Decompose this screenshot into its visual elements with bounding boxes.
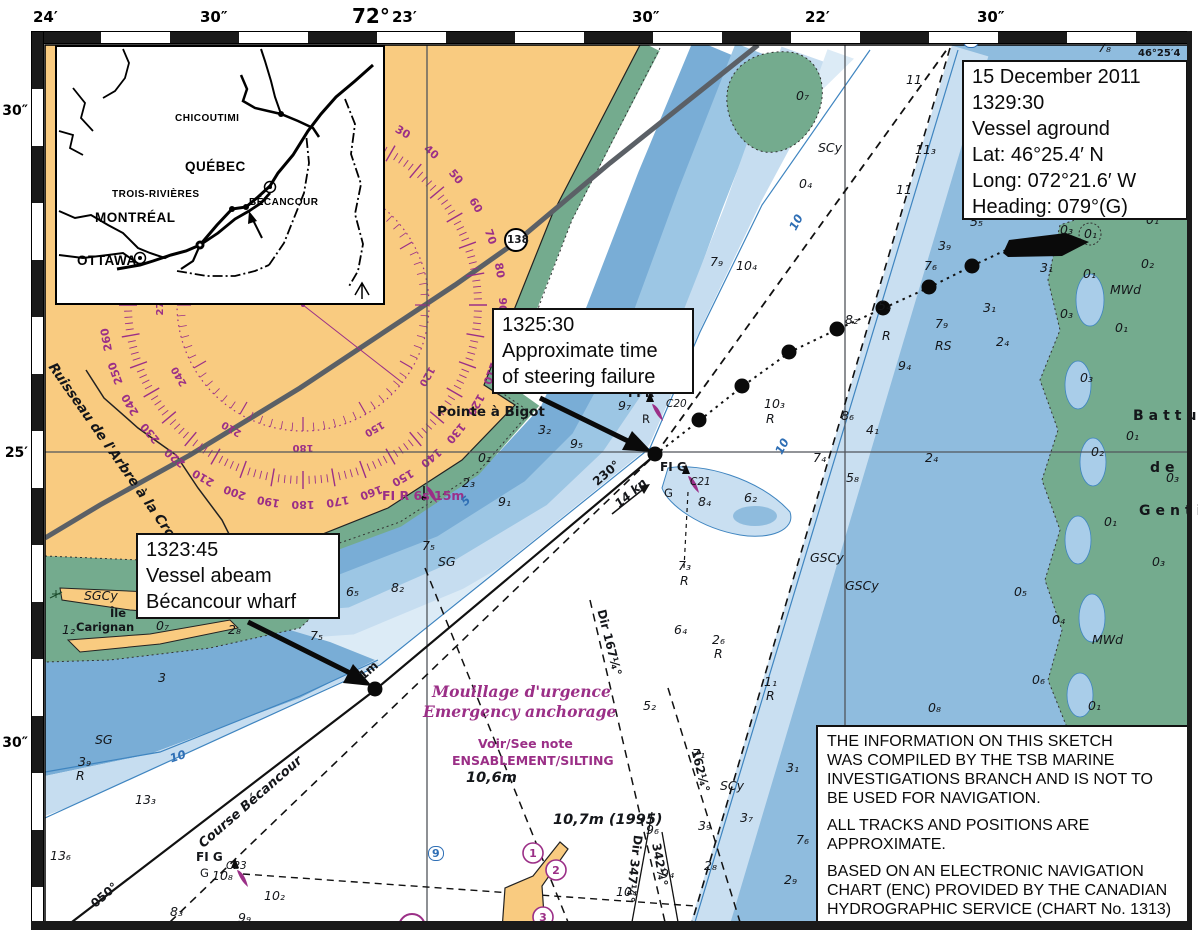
- depth-label: 2₄: [996, 334, 1009, 349]
- shoal-pocket-deep: [733, 506, 777, 526]
- note-line: Approximate time: [502, 338, 684, 364]
- depth-label: 3₉: [78, 754, 91, 769]
- depth-label: 6₄: [674, 622, 687, 637]
- depth-label: 0₂: [1091, 444, 1104, 459]
- saguenay-river: [241, 75, 319, 137]
- depth-label: 7₆: [924, 258, 937, 273]
- depth-label: 8₄: [698, 494, 711, 509]
- note-line: Vessel aground: [972, 116, 1178, 142]
- disclaimer-note: THE INFORMATION ON THIS SKETCHWAS COMPIL…: [816, 725, 1192, 924]
- depth-label: 10₈: [212, 868, 233, 883]
- depth-label: 6₅: [346, 584, 359, 599]
- depth-label: R: [766, 411, 775, 426]
- depth-label: 11: [896, 182, 912, 197]
- becancour-pointer-head: [248, 211, 257, 224]
- note-line: 1325:30: [502, 312, 684, 338]
- axis-tick-label: 30″: [0, 103, 28, 119]
- depth-label: 10₃: [764, 396, 785, 411]
- note-line: Long: 072°21.6′ W: [972, 168, 1178, 194]
- disclaimer-paragraph: THE INFORMATION ON THIS SKETCHWAS COMPIL…: [827, 732, 1181, 808]
- depth-label: 9₄: [661, 866, 674, 881]
- depth-label: 2₃: [462, 475, 475, 490]
- depth-label: 7₉: [935, 316, 948, 331]
- depth-label: 3₁: [1040, 260, 1053, 275]
- place-label: Carignan: [76, 620, 134, 634]
- depth-label: 9₄: [898, 358, 911, 373]
- depth-label: 11₃: [915, 142, 936, 157]
- depth-label: 10,6m: [466, 770, 517, 786]
- seabed-label: MWd: [1110, 282, 1141, 297]
- depth-label: 3₉: [938, 238, 951, 253]
- place-label: Île: [110, 606, 126, 620]
- depth-label: 10₄: [616, 884, 637, 899]
- note-line: Vessel abeam: [146, 563, 330, 589]
- depth-label: R: [714, 646, 723, 661]
- boundary: [177, 265, 269, 276]
- tidal-pool: [1065, 516, 1091, 564]
- notice-label: Mouillage d'urgence: [432, 682, 611, 701]
- depth-label: 0₃: [1166, 470, 1179, 485]
- note-line: 1329:30: [972, 90, 1178, 116]
- navaid-label: FI G: [660, 460, 687, 474]
- depth-label: 0₁: [1126, 428, 1139, 443]
- inset-city-label: BÉCANCOUR: [249, 197, 319, 208]
- depth-label: 10₄: [736, 258, 757, 273]
- tidal-pool: [1065, 361, 1091, 409]
- navaid-label: FI G: [196, 850, 223, 864]
- depth-label: 13₃: [135, 792, 156, 807]
- seabed-label: SG: [95, 732, 113, 747]
- navaid-label: R: [642, 412, 650, 426]
- navaid-label: C21: [690, 476, 711, 488]
- tidal-pool: [1076, 274, 1104, 326]
- axis-tick-label: 30″: [632, 8, 660, 26]
- inset-city-label: CHICOUTIMI: [175, 113, 239, 124]
- depth-label: 7₆: [796, 832, 809, 847]
- depth-label: 0₁: [478, 450, 491, 465]
- axis-tick-label: 24′: [33, 8, 58, 26]
- depth-label: 0₂: [1141, 256, 1154, 271]
- depth-label: 1₁: [764, 674, 777, 689]
- svg-text:1: 1: [529, 847, 537, 860]
- depth-label: 0₇: [156, 618, 169, 633]
- depth-label: 7₅: [422, 538, 435, 553]
- depth-label: 0₃: [1060, 306, 1073, 321]
- axis-tick-label: 22′: [805, 8, 830, 26]
- axis-tick-label: 25′: [0, 445, 28, 461]
- disclaimer-paragraph: BASED ON AN ELECTRONIC NAVIGATIONCHART (…: [827, 862, 1181, 919]
- compass-bearing-label: 180: [291, 498, 314, 511]
- depth-label: R: [76, 768, 85, 783]
- notice-label: Voir/See note: [478, 736, 573, 751]
- river: [261, 49, 281, 114]
- seabed-label: SGCy: [84, 588, 118, 603]
- note-line: Heading: 079°(G): [972, 194, 1178, 220]
- note-line: Lat: 46°25.4′ N: [972, 142, 1178, 168]
- depth-label: 2₆: [712, 632, 725, 647]
- river: [103, 49, 129, 98]
- note-line: Bécancour wharf: [146, 589, 330, 615]
- depth-label: 0₃: [1152, 554, 1165, 569]
- annotation-steering-failure: 1325:30Approximate timeof steering failu…: [492, 308, 694, 394]
- depth-label: 8₆: [841, 408, 854, 423]
- inset-overview-map: CHICOUTIMIQUÉBECTROIS-RIVIÈRESBÉCANCOURM…: [55, 45, 385, 305]
- border-scale-right: [1187, 31, 1192, 926]
- depth-label: R: [766, 688, 775, 703]
- svg-text:2: 2: [552, 864, 560, 877]
- seabed-label: SCy: [720, 778, 744, 793]
- depth-label: 8₂: [391, 580, 404, 595]
- depth-label: 7₉: [710, 254, 723, 269]
- depth-label: 5₂: [643, 698, 656, 713]
- axis-tick-label: 30″: [977, 8, 1005, 26]
- depth-label: 8₃: [170, 904, 183, 919]
- depth-label: 7₄: [813, 450, 826, 465]
- depth-label: 3₂: [538, 422, 551, 437]
- depth-label: 0₅: [1014, 584, 1027, 599]
- notice-label: Emergency anchorage: [423, 702, 616, 721]
- depth-label: 3₉: [698, 818, 711, 833]
- depth-label: 0₁: [1104, 514, 1117, 529]
- depth-label: 0₁: [1088, 698, 1101, 713]
- depth-label: R: [680, 573, 689, 588]
- depth-label: 0₁: [1084, 226, 1097, 241]
- depth-label: 3: [158, 670, 166, 685]
- depth-label: 2₈: [228, 622, 241, 637]
- depth-label: 13₆: [50, 848, 71, 863]
- depth-label: 9₆: [646, 822, 659, 837]
- note-line: 1323:45: [146, 537, 330, 563]
- depth-label: 7₅: [310, 628, 323, 643]
- depth-label: R: [882, 328, 891, 343]
- annotation-vessel-abeam: 1323:45Vessel abeamBécancour wharf: [136, 533, 340, 619]
- nautical-chart-sheet: 3040506070809010011012013014015016017018…: [0, 0, 1198, 933]
- depth-label: 10₂: [264, 888, 285, 903]
- border-scale-top: [31, 31, 1192, 44]
- annotation-vessel-aground: 15 December 20111329:30Vessel agroundLat…: [962, 60, 1188, 220]
- depth-label: 8₂: [845, 312, 858, 327]
- depth-label: 11: [906, 72, 922, 87]
- depth-label: 3₁: [786, 760, 799, 775]
- depth-label: 3₁: [983, 300, 996, 315]
- depth-label: 0₁: [1115, 320, 1128, 335]
- depth-label: 3₇: [740, 810, 753, 825]
- depth-label: 5₄: [878, 298, 891, 313]
- disclaimer-paragraph: ALL TRACKS AND POSITIONS AREAPPROXIMATE.: [827, 816, 1181, 854]
- depth-label: 9₅: [570, 436, 583, 451]
- depth-label: 2₄: [925, 450, 938, 465]
- axis-tick-label: 23′: [392, 8, 417, 26]
- inset-city-label: TROIS-RIVIÈRES: [112, 189, 200, 200]
- route-shield-label: 138: [507, 234, 529, 246]
- depth-label: 0₈: [928, 700, 941, 715]
- depth-label: 9₁: [498, 494, 511, 509]
- depth-label: 0₃: [1060, 222, 1073, 237]
- navaid-label: G: [664, 486, 673, 500]
- north-arrow-icon: [355, 283, 369, 299]
- seabed-label: SCy: [818, 140, 842, 155]
- seabed-label: GSCy: [810, 550, 844, 565]
- seabed-label: GSCy: [845, 578, 879, 593]
- depth-label: 0₄: [799, 176, 812, 191]
- border-scale-bottom: [31, 921, 1192, 930]
- navaid-label: G: [200, 866, 209, 880]
- navaid-label: C20: [666, 398, 687, 410]
- seabed-label: MWd: [1092, 632, 1123, 647]
- axis-tick-label: 72°: [352, 4, 390, 28]
- inset-city-label: OTTAWA: [77, 253, 137, 268]
- depth-label: 2₉: [784, 872, 797, 887]
- inset-city-label: QUÉBEC: [185, 159, 246, 174]
- graticule-label: 46°25′4: [1138, 48, 1180, 59]
- boundary: [345, 99, 363, 288]
- border-scale-left: [31, 31, 44, 926]
- note-line: of steering failure: [502, 364, 684, 390]
- depth-label: 1₂: [62, 622, 75, 637]
- depth-label: 4₁: [866, 422, 879, 437]
- depth-label: 0₁: [1083, 266, 1096, 281]
- place-label: Pointe à Bigot: [437, 404, 545, 420]
- city-symbols: [135, 111, 285, 264]
- contour-label: 9: [428, 846, 444, 861]
- depth-label: 0₃: [1080, 370, 1093, 385]
- notice-label: ENSABLEMENT/SILTING: [452, 753, 614, 768]
- note-line: 15 December 2011: [972, 64, 1178, 90]
- becancour-pointer: [253, 220, 262, 238]
- notice-label: FI R 6s 15m: [382, 488, 464, 503]
- depth-label: 6₂: [744, 490, 757, 505]
- river: [73, 88, 93, 131]
- depth-label: 0₇: [796, 88, 809, 103]
- axis-tick-label: 30″: [200, 8, 228, 26]
- seabed-label: RS: [935, 338, 952, 353]
- depth-label: 9₇: [618, 398, 631, 413]
- depth-label: 7₃: [678, 558, 691, 573]
- depth-label: 2₈: [704, 858, 717, 873]
- depth-label: 0₄: [1052, 612, 1065, 627]
- seabed-label: SG: [438, 554, 456, 569]
- axis-tick-label: 30″: [0, 735, 28, 751]
- depth-label: 0₆: [1032, 672, 1045, 687]
- river: [59, 131, 83, 155]
- depth-label: 5₈: [846, 470, 859, 485]
- compass-bearing-label: 80: [492, 262, 508, 280]
- depth-label: 7₁: [692, 746, 705, 761]
- inset-city-label: MONTRÉAL: [95, 210, 176, 225]
